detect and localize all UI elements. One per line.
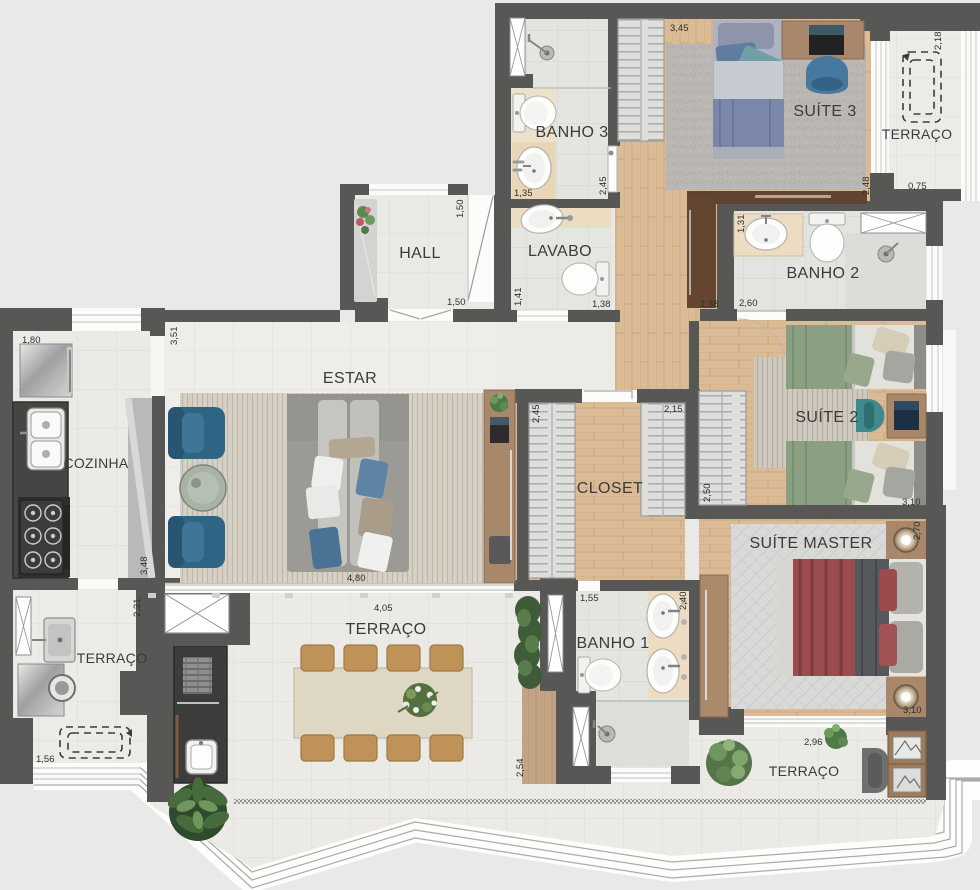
svg-text:3,10: 3,10 — [902, 497, 921, 508]
svg-text:1,31: 1,31 — [736, 215, 747, 234]
svg-text:1,80: 1,80 — [22, 335, 41, 346]
svg-text:TERRAÇO: TERRAÇO — [769, 763, 840, 779]
svg-text:1,50: 1,50 — [455, 200, 466, 219]
svg-text:1,38: 1,38 — [592, 299, 611, 310]
svg-text:LAVABO: LAVABO — [528, 243, 592, 260]
svg-text:2,70: 2,70 — [912, 522, 923, 541]
svg-text:BANHO 1: BANHO 1 — [576, 635, 649, 652]
svg-text:SUÍTE 3: SUÍTE 3 — [793, 101, 856, 120]
svg-text:0,75: 0,75 — [908, 181, 927, 192]
svg-text:2,15: 2,15 — [664, 404, 683, 415]
svg-text:3,48: 3,48 — [139, 557, 150, 576]
svg-text:ESTAR: ESTAR — [323, 370, 377, 387]
svg-text:CLOSET: CLOSET — [577, 480, 643, 497]
svg-text:2,40: 2,40 — [678, 592, 689, 611]
svg-text:1,50: 1,50 — [447, 297, 466, 308]
svg-text:2,48: 2,48 — [861, 177, 872, 196]
svg-text:1,35: 1,35 — [514, 188, 533, 199]
svg-text:BANHO 2: BANHO 2 — [786, 265, 859, 282]
svg-text:1,56: 1,56 — [36, 754, 55, 765]
svg-text:HALL: HALL — [399, 245, 441, 262]
svg-text:2,45: 2,45 — [598, 177, 609, 196]
svg-text:2,54: 2,54 — [515, 759, 526, 778]
svg-text:TERRAÇO: TERRAÇO — [345, 621, 426, 638]
svg-text:COZINHA: COZINHA — [63, 455, 128, 471]
svg-text:3,51: 3,51 — [169, 327, 180, 346]
svg-text:2,31: 2,31 — [132, 599, 143, 618]
svg-text:4,80: 4,80 — [347, 573, 366, 584]
svg-text:1,41: 1,41 — [513, 288, 524, 307]
svg-text:1,55: 1,55 — [580, 593, 599, 604]
svg-text:TERRAÇO: TERRAÇO — [77, 650, 148, 666]
svg-text:BANHO 3: BANHO 3 — [535, 124, 608, 141]
svg-text:3,45: 3,45 — [670, 23, 689, 34]
svg-text:3,10: 3,10 — [903, 705, 922, 716]
svg-text:2,96: 2,96 — [804, 737, 823, 748]
svg-text:SUÍTE MASTER: SUÍTE MASTER — [749, 533, 872, 552]
svg-text:SUÍTE 2: SUÍTE 2 — [795, 407, 858, 426]
svg-text:4,05: 4,05 — [374, 603, 393, 614]
svg-text:1,38: 1,38 — [700, 299, 719, 310]
svg-text:TERRAÇO: TERRAÇO — [882, 126, 953, 142]
svg-text:2,45: 2,45 — [531, 405, 542, 424]
svg-text:2,18: 2,18 — [933, 32, 944, 51]
svg-text:2,50: 2,50 — [702, 484, 713, 503]
svg-text:2,60: 2,60 — [739, 298, 758, 309]
